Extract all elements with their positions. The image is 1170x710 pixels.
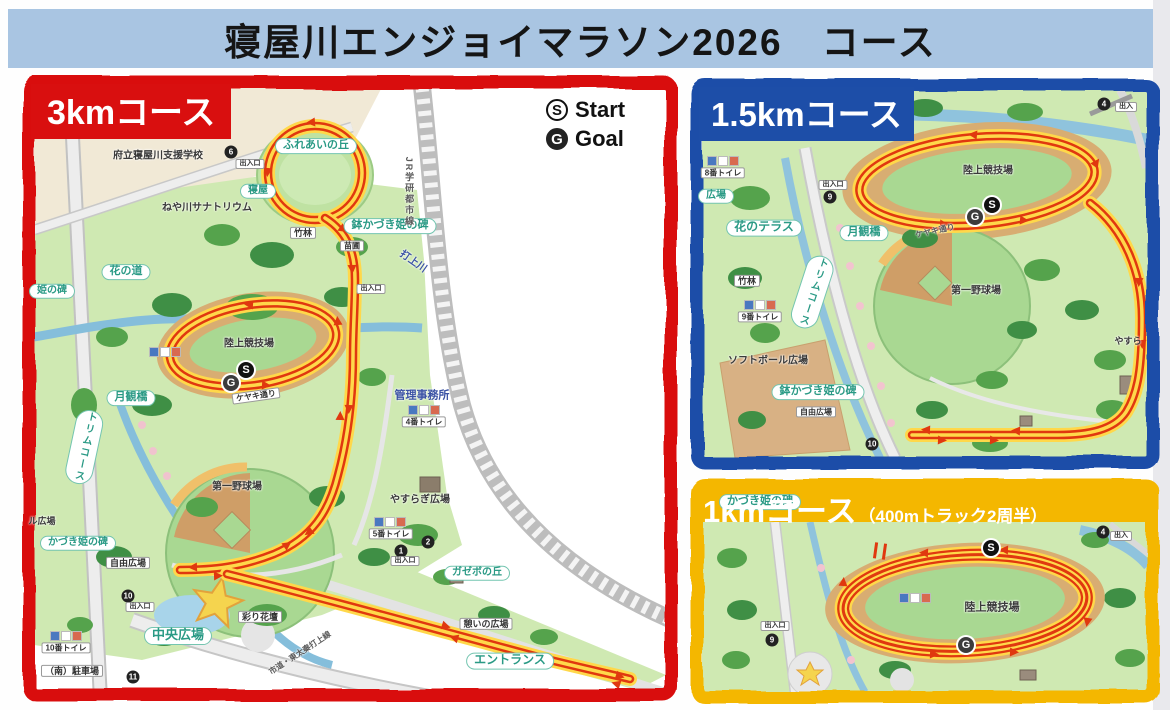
legend-start-label: Start [575, 97, 625, 123]
course-1km-title: 1kmコース（400mトラック2周半） [703, 486, 1047, 531]
goal-marker-icon: G [546, 128, 568, 150]
page-title: 寝屋川エンジョイマラソン2026 コース [224, 12, 936, 66]
legend-goal-row: G Goal [546, 126, 625, 152]
title-bar: 寝屋川エンジョイマラソン2026 コース [8, 9, 1153, 68]
baseball-field [874, 228, 1030, 384]
start-goal-legend: S Start G Goal [546, 97, 625, 152]
map-3km-illustration [22, 75, 678, 702]
course-1-5km-title: 1.5kmコース [699, 87, 914, 141]
legend-start-row: S Start [546, 97, 625, 123]
legend-goal-label: Goal [575, 126, 624, 152]
course-3km-title: 3kmコース [31, 84, 231, 139]
start-marker-icon: S [546, 99, 568, 121]
page-background: 寝屋川エンジョイマラソン2026 コース [0, 0, 1170, 710]
course-1km-title-suffix: （400mトラック2周半） [859, 502, 1048, 527]
